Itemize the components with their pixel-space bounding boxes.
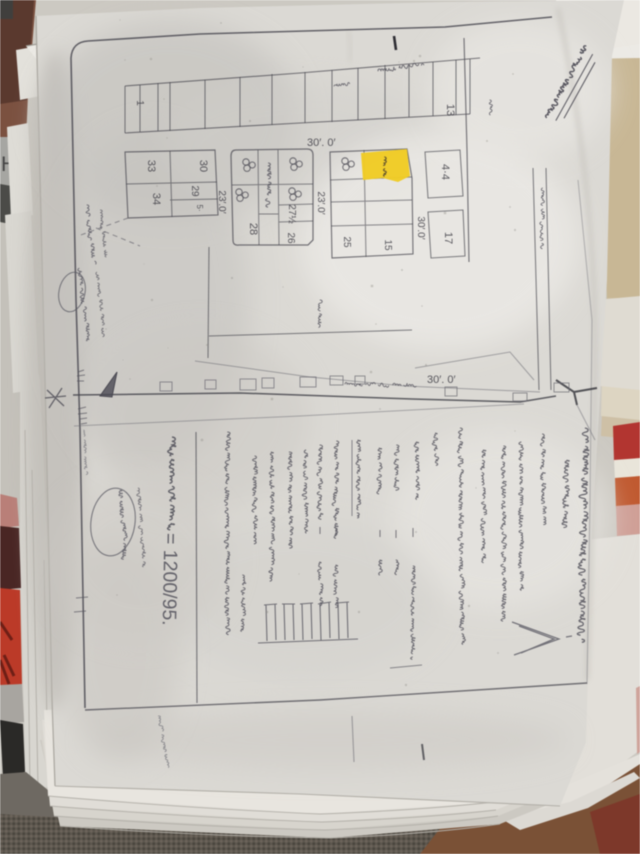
svg-text:33: 33 — [145, 160, 157, 172]
svg-text:30: 30 — [197, 160, 209, 172]
svg-text:4·4: 4·4 — [439, 164, 451, 180]
svg-text:27½: 27½ — [286, 204, 297, 224]
svg-text:5·: 5· — [195, 204, 204, 211]
svg-text:15: 15 — [382, 239, 393, 251]
svg-text:26: 26 — [285, 232, 296, 244]
svg-text:29: 29 — [189, 185, 200, 197]
svg-text:23′.0′: 23′.0′ — [216, 190, 227, 213]
svg-text:34: 34 — [150, 193, 162, 205]
svg-text:30′.0′: 30′.0′ — [415, 216, 426, 239]
svg-text:28: 28 — [247, 223, 259, 235]
svg-text:= 1200/95.: = 1200/95. — [158, 533, 182, 626]
svg-text:23′.0′: 23′.0′ — [315, 191, 326, 214]
svg-text:17: 17 — [442, 232, 454, 244]
svg-text:25: 25 — [341, 236, 352, 248]
svg-text:1: 1 — [134, 100, 145, 106]
svg-text:13: 13 — [444, 104, 456, 116]
svg-text:30′. 0′: 30′. 0′ — [307, 137, 336, 149]
svg-text:30′. 0′: 30′. 0′ — [427, 374, 456, 386]
